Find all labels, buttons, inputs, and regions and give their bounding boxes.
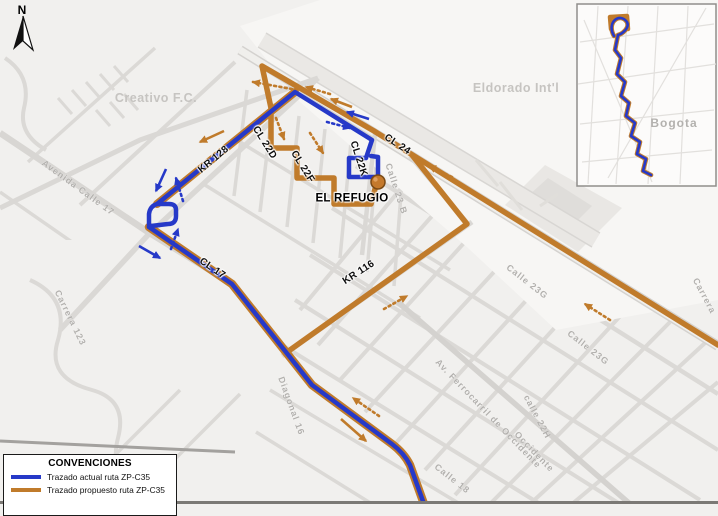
el-refugio-marker: [371, 175, 385, 189]
route-swatch-proposed: [11, 488, 41, 493]
el-refugio-marker-highlight: [373, 177, 377, 181]
legend-title: CONVENCIONES: [4, 458, 176, 469]
legend: CONVENCIONES Trazado actual ruta ZP-C35 …: [3, 454, 177, 516]
legend-item-label: Trazado actual ruta ZP-C35: [47, 472, 150, 482]
map-render-surface: [0, 0, 718, 504]
map-features: [0, 0, 718, 504]
legend-item-label: Trazado propuesto ruta ZP-C35: [47, 485, 165, 495]
route-swatch-current: [11, 475, 41, 480]
legend-item-current: Trazado actual ruta ZP-C35: [4, 469, 176, 482]
map-canvas[interactable]: NCreativo F.C.Eldorado Int'lAvenida Call…: [0, 0, 718, 504]
legend-item-proposed: Trazado propuesto ruta ZP-C35: [4, 482, 176, 495]
